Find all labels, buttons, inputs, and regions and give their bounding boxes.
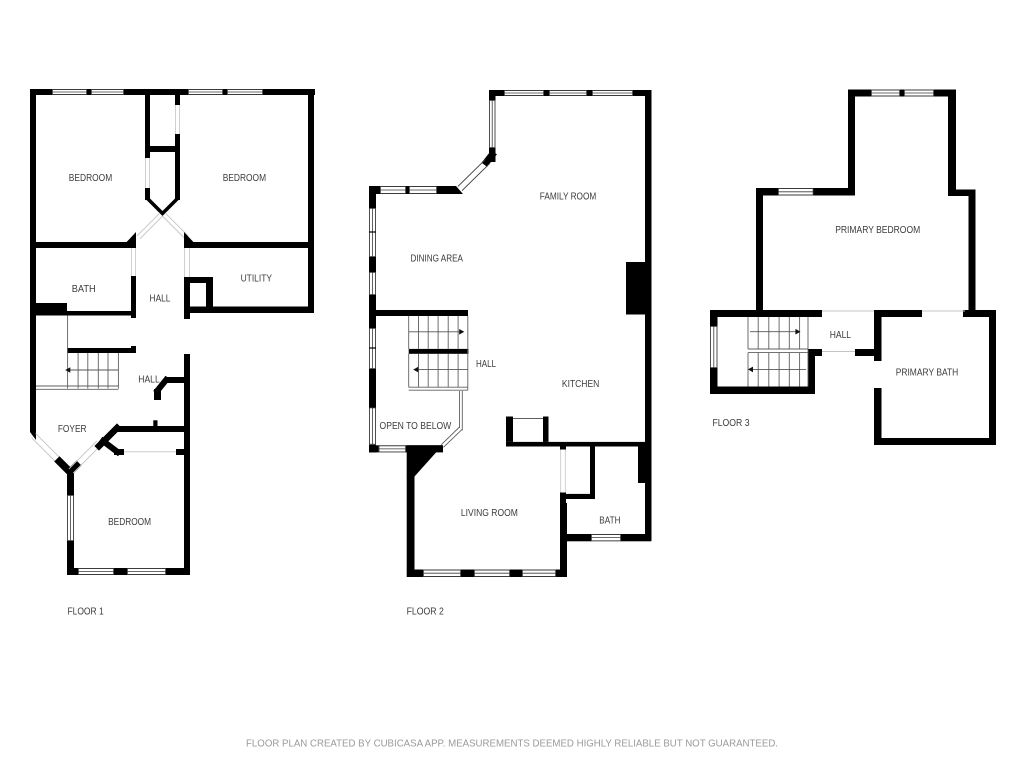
svg-text:KITCHEN: KITCHEN [562, 379, 599, 390]
svg-text:FLOOR 3: FLOOR 3 [712, 418, 749, 429]
svg-text:HALL: HALL [150, 294, 171, 305]
svg-text:BATH: BATH [72, 284, 96, 295]
svg-text:PRIMARY BATH: PRIMARY BATH [896, 368, 959, 379]
svg-text:BATH: BATH [599, 516, 620, 527]
svg-text:OPEN TO BELOW: OPEN TO BELOW [380, 421, 452, 432]
svg-text:FOYER: FOYER [58, 424, 87, 435]
svg-text:LIVING ROOM: LIVING ROOM [461, 508, 518, 519]
svg-text:HALL: HALL [830, 330, 851, 341]
svg-text:FAMILY ROOM: FAMILY ROOM [540, 192, 597, 203]
svg-text:BEDROOM: BEDROOM [223, 173, 266, 184]
svg-text:FLOOR 1: FLOOR 1 [67, 606, 103, 617]
svg-text:DINING AREA: DINING AREA [410, 253, 463, 264]
svg-text:FLOOR PLAN CREATED BY CUBICASA: FLOOR PLAN CREATED BY CUBICASA APP. MEAS… [246, 739, 778, 750]
svg-text:FLOOR 2: FLOOR 2 [407, 606, 444, 617]
svg-text:UTILITY: UTILITY [241, 273, 272, 284]
svg-text:HALL: HALL [476, 359, 496, 370]
svg-text:PRIMARY BEDROOM: PRIMARY BEDROOM [835, 225, 920, 236]
svg-text:BEDROOM: BEDROOM [69, 173, 112, 184]
svg-text:BEDROOM: BEDROOM [108, 517, 151, 528]
svg-text:HALL: HALL [138, 374, 160, 385]
